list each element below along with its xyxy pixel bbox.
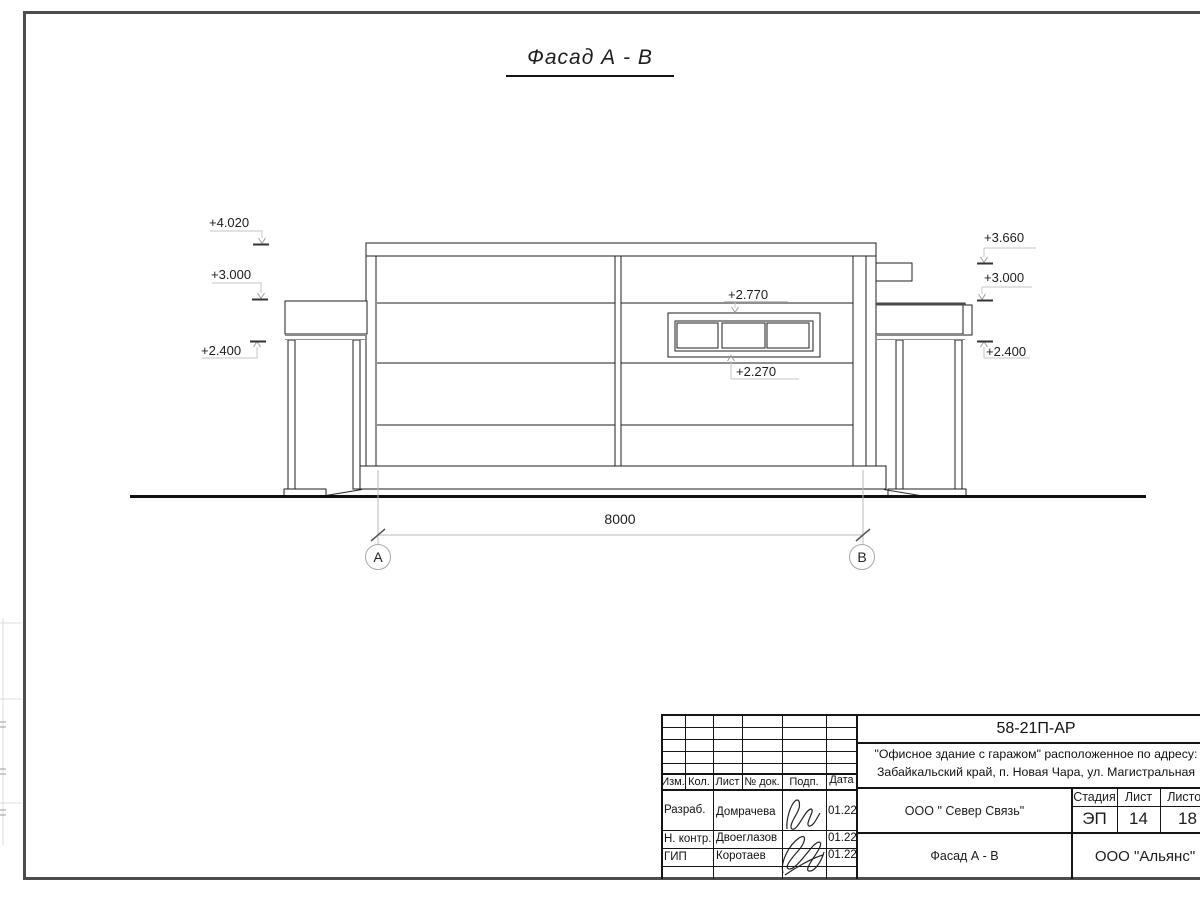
tb-col-kol: Кол. (685, 774, 713, 789)
tb-name-2: Коротаев (716, 850, 766, 862)
tb-line (857, 742, 1200, 744)
tb-line (661, 714, 663, 879)
elev-mark-right-top: +3.660 (984, 230, 1024, 245)
tb-name-0: Домрачева (716, 806, 776, 818)
tb-line (661, 866, 857, 867)
tb-line (782, 714, 783, 879)
signature-strokes (782, 800, 824, 875)
elev-mark-left-top: +4.020 (209, 215, 249, 230)
tb-role-1: Н. контр. (664, 833, 711, 845)
tb-line (713, 714, 714, 879)
tb-col-list: Лист (713, 774, 742, 789)
tb-col-izm: Изм. (661, 774, 685, 789)
tb-date-0: 01.22 (828, 805, 857, 817)
tb-date-1: 01.22 (828, 832, 857, 844)
tb-col-podp: Подп. (782, 774, 826, 789)
tb-line (661, 763, 857, 764)
tb-name-1: Двоеглазов (716, 832, 777, 844)
elev-mark-window-top: +2.770 (728, 287, 768, 302)
tb-project-line2: Забайкальский край, п. Новая Чара, ул. М… (858, 764, 1200, 782)
tb-line (661, 751, 857, 752)
tb-doc-number: 58-21П-АР (857, 715, 1200, 742)
tb-role-2: ГИП (664, 851, 687, 863)
tb-sheets-label: Листов (1160, 788, 1200, 806)
tb-date-2: 01.22 (828, 849, 857, 861)
tb-stage-value: ЭП (1072, 806, 1117, 832)
tb-project-line1: "Офисное здание с гаражом" расположенное… (858, 746, 1200, 764)
tb-org: ООО " Север Связь" (857, 789, 1072, 832)
axis-marker-a: А (365, 544, 391, 570)
axis-marker-b: В (849, 544, 875, 570)
tb-sheets-value: 18 (1160, 806, 1200, 832)
elev-mark-window-bottom: +2.270 (736, 364, 776, 379)
tb-stage-label: Стадия (1072, 788, 1117, 806)
elev-mark-left-low: +2.400 (201, 343, 241, 358)
tb-line (661, 739, 857, 740)
tb-project-address: "Офисное здание с гаражом" расположенное… (858, 746, 1200, 782)
tb-line (661, 789, 857, 791)
tb-role-0: Разраб. (664, 804, 705, 816)
tb-company: ООО "Альянс" (1072, 834, 1200, 878)
tb-line (826, 714, 827, 879)
tb-line (661, 830, 857, 831)
elev-mark-right-mid: +3.000 (984, 270, 1024, 285)
tb-col-data: Дата (826, 772, 857, 787)
drawing-sheet: Фасад А - В +4.020 +3.000 +2.400 +3.660 … (0, 0, 1200, 900)
elev-mark-left-mid: +3.000 (211, 267, 251, 282)
tb-sheet-value: 14 (1117, 806, 1160, 832)
drawing-title: Фасад А - В (506, 46, 674, 77)
dimension-8000: 8000 (584, 511, 656, 527)
tb-line (661, 727, 857, 728)
tb-col-doc: № док. (742, 774, 782, 789)
elev-mark-right-low: +2.400 (986, 344, 1026, 359)
tb-drawing-name: Фасад А - В (857, 834, 1072, 878)
tb-sheet-label: Лист (1117, 788, 1160, 806)
